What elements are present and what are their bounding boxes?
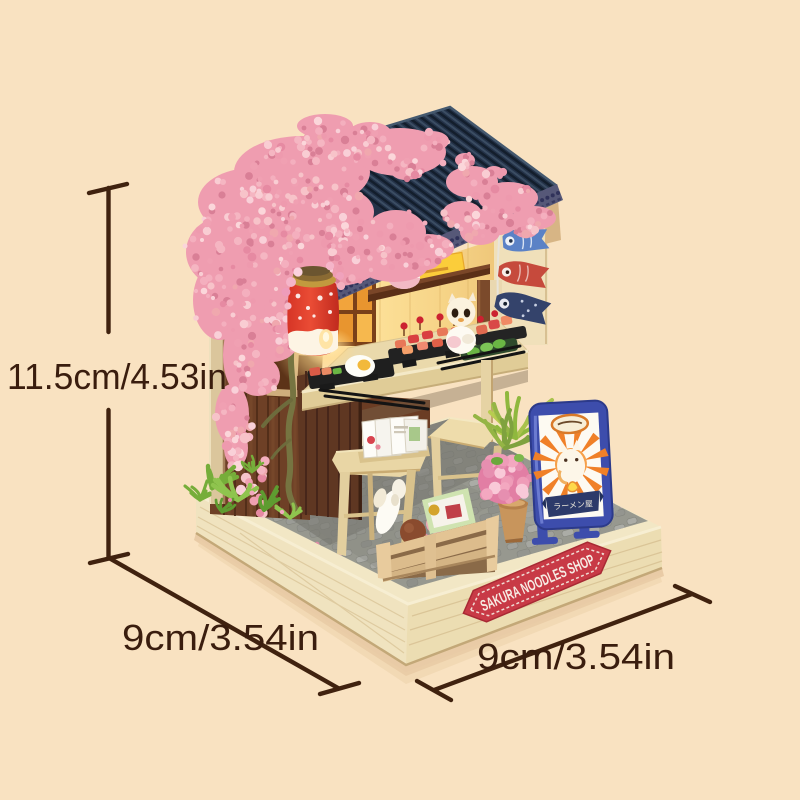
svg-text:9cm/3.54in: 9cm/3.54in <box>477 636 675 677</box>
svg-text:9cm/3.54in: 9cm/3.54in <box>122 617 319 658</box>
svg-text:11.5cm/4.53in: 11.5cm/4.53in <box>7 356 227 397</box>
